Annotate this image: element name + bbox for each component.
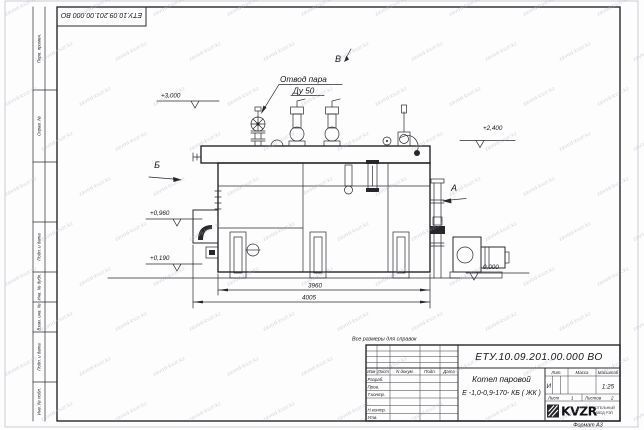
watermark-text: zavod-kvzr.kz <box>114 221 148 243</box>
col-podp: Подп. <box>424 369 436 374</box>
watermark-text: zavod-kvzr.kz <box>374 176 408 198</box>
top-stamp-text: ЕТУ.10.09.201.00.000 ВО <box>60 11 142 18</box>
side-label-podp-data-1: Подп. и дата <box>37 233 42 261</box>
title-block: ЕТУ.10.09.201.00.000 ВО Изм Лист N докум… <box>366 345 620 421</box>
watermark-text: zavod-kvzr.kz <box>596 86 630 108</box>
watermark-text: zavod-kvzr.kz <box>410 131 444 153</box>
watermark-text: zavod-kvzr.kz <box>188 401 222 423</box>
watermark-text: zavod-kvzr.kz <box>152 0 186 18</box>
watermark-text: zavod-kvzr.kz <box>262 41 296 63</box>
watermark-text: zavod-kvzr.kz <box>522 266 556 288</box>
watermark-text: zavod-kvzr.kz <box>78 176 112 198</box>
watermark-text: zavod-kvzr.kz <box>78 266 112 288</box>
row-nkontr: Н.контр. <box>368 407 387 412</box>
watermark-text: zavod-kvzr.kz <box>410 41 444 63</box>
watermark-text: zavod-kvzr.kz <box>374 0 408 18</box>
watermark-text: zavod-kvzr.kz <box>78 86 112 108</box>
watermark-text: zavod-kvzr.kz <box>336 401 370 423</box>
sheet-value: 1 <box>571 396 574 401</box>
mass-label: Масса <box>576 370 590 375</box>
watermark-text: zavod-kvzr.kz <box>596 0 630 18</box>
watermark-text: zavod-kvzr.kz <box>226 0 260 18</box>
watermark-text: zavod-kvzr.kz <box>448 0 482 18</box>
product-name-line2: Е -1,0-0,9-170- КБ ( ЖК ) <box>462 390 541 397</box>
watermark-text: zavod-kvzr.kz <box>374 86 408 108</box>
elevation-2400: +2,400 <box>460 125 515 148</box>
drawing-sheet: Перв. примен. Справ. № Подп. и дата Инв.… <box>0 0 644 430</box>
watermark-text: zavod-kvzr.kz <box>188 41 222 63</box>
sheets-label: Листов <box>584 396 602 401</box>
watermark-text: zavod-kvzr.kz <box>300 0 334 18</box>
watermark-text: zavod-kvzr.kz <box>114 41 148 63</box>
elevation-2400-text: +2,400 <box>483 125 503 132</box>
watermark-text: zavod-kvzr.kz <box>300 176 334 198</box>
watermark-text: zavod-kvzr.kz <box>336 41 370 63</box>
side-label-inv-podl: Инв. № подл. <box>37 388 42 415</box>
steam-outlet-label-line1: Отвод пара <box>280 75 327 84</box>
lever-safety-valve <box>383 105 420 156</box>
col-data: Дата <box>442 369 455 374</box>
elevation-3000-text: +3,000 <box>161 93 181 100</box>
watermark-text: zavod-kvzr.kz <box>484 401 518 423</box>
sheets-value: 2 <box>610 396 614 401</box>
downcomer-pipe <box>430 179 445 278</box>
view-label-a: А <box>450 183 457 193</box>
watermark-text: zavod-kvzr.kz <box>226 176 260 198</box>
watermark-text: zavod-kvzr.kz <box>448 86 482 108</box>
watermark-text: zavod-kvzr.kz <box>484 131 518 153</box>
lit-value: И <box>547 383 552 390</box>
sheet-label: Лист <box>547 396 560 401</box>
watermark-text: zavod-kvzr.kz <box>188 311 222 333</box>
watermark-text: zavod-kvzr.kz <box>410 311 444 333</box>
steam-outlet-valve <box>251 107 265 146</box>
logo-sub-line2: ЗАВОД РЭП <box>593 411 614 415</box>
watermark-text: zavod-kvzr.kz <box>152 266 186 288</box>
watermark-text: zavod-kvzr.kz <box>188 131 222 153</box>
watermark-text: zavod-kvzr.kz <box>152 356 186 378</box>
row-razrab: Разраб. <box>368 377 384 382</box>
view-label-v: В <box>335 54 341 64</box>
watermark-text: zavod-kvzr.kz <box>596 266 630 288</box>
watermark-text: zavod-kvzr.kz <box>226 266 260 288</box>
watermark-text: zavod-kvzr.kz <box>226 356 260 378</box>
watermark-text: zavod-kvzr.kz <box>336 221 370 243</box>
dimension-4005: 4005 <box>193 295 430 304</box>
elevation-0960: +0,960 <box>146 210 202 226</box>
steam-outlet-label-line2: Ду 50 <box>292 87 315 96</box>
watermark-text: zavod-kvzr.kz <box>336 131 370 153</box>
side-label-vzam-inv: Взам. инв. № <box>37 303 42 330</box>
watermark-text: zavod-kvzr.kz <box>374 356 408 378</box>
side-label-podp-data-2: Подп. и дата <box>37 343 42 371</box>
col-dokum: N докум. <box>396 369 414 374</box>
col-izm: Изм <box>367 369 375 374</box>
watermark-text: zavod-kvzr.kz <box>336 311 370 333</box>
row-prov: Пров. <box>368 384 380 389</box>
elevation-0190-text: +0,190 <box>150 255 170 262</box>
watermark-text: zavod-kvzr.kz <box>262 401 296 423</box>
watermark-text: zavod-kvzr.kz <box>522 86 556 108</box>
side-label-sprav-no: Справ. № <box>37 116 42 136</box>
watermark-text: zavod-kvzr.kz <box>522 176 556 198</box>
format-label: Формат А3 <box>573 423 603 429</box>
elevation-0000-text: 0,000 <box>483 264 499 271</box>
annotations: Отвод пара Ду 50 В Б А +3,000 +2,400 +0,… <box>146 49 529 343</box>
watermark-text: zavod-kvzr.kz <box>374 266 408 288</box>
watermark-text: zavod-kvzr.kz <box>558 221 592 243</box>
elevation-0190: +0,190 <box>146 255 202 271</box>
row-tkontr: Т.контр. <box>368 392 386 397</box>
watermark-text: zavod-kvzr.kz <box>522 0 556 18</box>
boiler-drawing <box>108 99 509 278</box>
watermark-text: zavod-kvzr.kz <box>300 356 334 378</box>
dimension-3960-text: 3960 <box>308 283 323 290</box>
paper-border <box>5 1 638 427</box>
scale-value: 1:25 <box>602 384 615 391</box>
side-label-inv-dubl: Инв. № дубл. <box>37 273 42 300</box>
scale-label: Масштаб <box>598 370 619 375</box>
watermark-text: zavod-kvzr.kz <box>484 41 518 63</box>
watermark-text: zavod-kvzr.kz <box>262 131 296 153</box>
watermark-text: zavod-kvzr.kz <box>114 401 148 423</box>
kvzr-logo: KVZR КОТЕЛЬНЫЙ ЗАВОД РЭП <box>547 404 615 419</box>
watermark-text: zavod-kvzr.kz <box>114 311 148 333</box>
drawing-canvas: Перв. примен. Справ. № Подп. и дата Инв.… <box>0 0 644 430</box>
view-label-b: Б <box>154 160 160 170</box>
watermark-text: zavod-kvzr.kz <box>410 401 444 423</box>
gost-frame: Перв. примен. Справ. № Подп. и дата Инв.… <box>33 7 620 429</box>
row-utv: Утв. <box>368 415 378 420</box>
side-label-perv-primen: Перв. примен. <box>37 34 42 63</box>
product-name-line1: Котел паровой <box>472 375 531 384</box>
watermark-text: zavod-kvzr.kz <box>558 131 592 153</box>
elevation-0960-text: +0,960 <box>150 210 170 217</box>
dimension-4005-text: 4005 <box>302 295 317 302</box>
watermark-text: zavod-kvzr.kz <box>114 131 148 153</box>
col-list: Лист <box>377 369 390 374</box>
watermark-text: zavod-kvzr.kz <box>262 311 296 333</box>
watermark-text: zavod-kvzr.kz <box>78 356 112 378</box>
watermark-text: zavod-kvzr.kz <box>152 176 186 198</box>
lit-label: Лит. <box>550 370 561 375</box>
safety-valve-2 <box>324 99 340 146</box>
watermark-text: zavod-kvzr.kz <box>558 41 592 63</box>
elevation-3000: +3,000 <box>157 93 219 109</box>
watermark-text: zavod-kvzr.kz <box>596 176 630 198</box>
doc-number: ЕТУ.10.09.201.00.000 ВО <box>475 352 602 363</box>
watermark-text: zavod-kvzr.kz <box>484 221 518 243</box>
safety-valve-1 <box>289 99 305 146</box>
water-level-gauges <box>345 160 380 194</box>
blower-fan <box>450 237 509 278</box>
watermark-text: zavod-kvzr.kz <box>558 311 592 333</box>
watermark-text: zavod-kvzr.kz <box>262 221 296 243</box>
logo-sub-line1: КОТЕЛЬНЫЙ <box>593 406 615 410</box>
watermark-text: zavod-kvzr.kz <box>226 86 260 108</box>
watermark-text: zavod-kvzr.kz <box>484 311 518 333</box>
reference-note: Все размеры для справок <box>352 337 417 343</box>
